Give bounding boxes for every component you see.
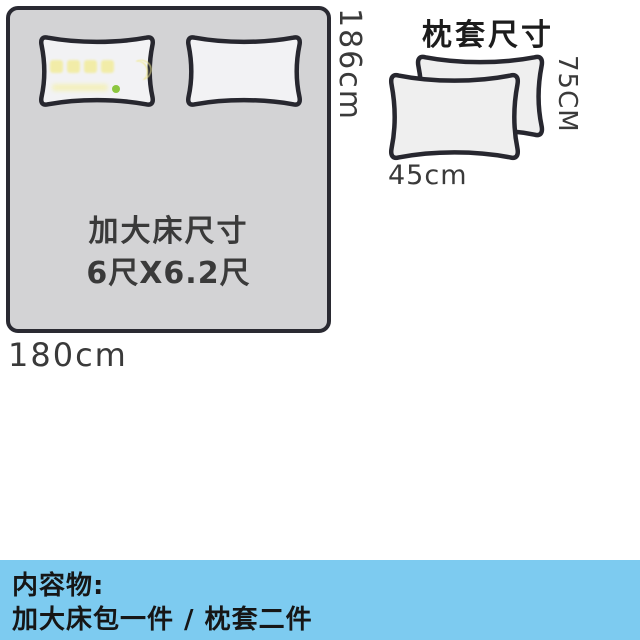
pillowcase-height-dimension: 75CM: [552, 55, 582, 133]
bed-width-dimension: 180cm: [8, 336, 128, 374]
bed-pillow-right: [181, 34, 307, 108]
contents-items: 加大床包一件 / 枕套二件: [12, 599, 313, 636]
pillowcase-front: [383, 71, 526, 162]
bed-pillow-left: [34, 34, 160, 108]
bed-size-value: 6尺X6.2尺: [10, 248, 327, 292]
contents-heading: 内容物:: [12, 565, 104, 602]
bed-size-title: 加大床尺寸: [10, 206, 327, 250]
contents-bar: 内容物: 加大床包一件 / 枕套二件: [0, 560, 640, 640]
bed-sheet-diagram: ☽ 加大床尺寸 6尺X6.2尺: [6, 6, 331, 333]
pillowcase-width-dimension: 45cm: [388, 160, 468, 191]
pillowcase-section-title: 枕套尺寸: [398, 10, 578, 54]
bed-height-dimension: 186cm: [332, 8, 367, 121]
product-size-diagram: ☽ 加大床尺寸 6尺X6.2尺 186cm 180cm 枕套尺寸 75CM 45…: [0, 0, 640, 640]
